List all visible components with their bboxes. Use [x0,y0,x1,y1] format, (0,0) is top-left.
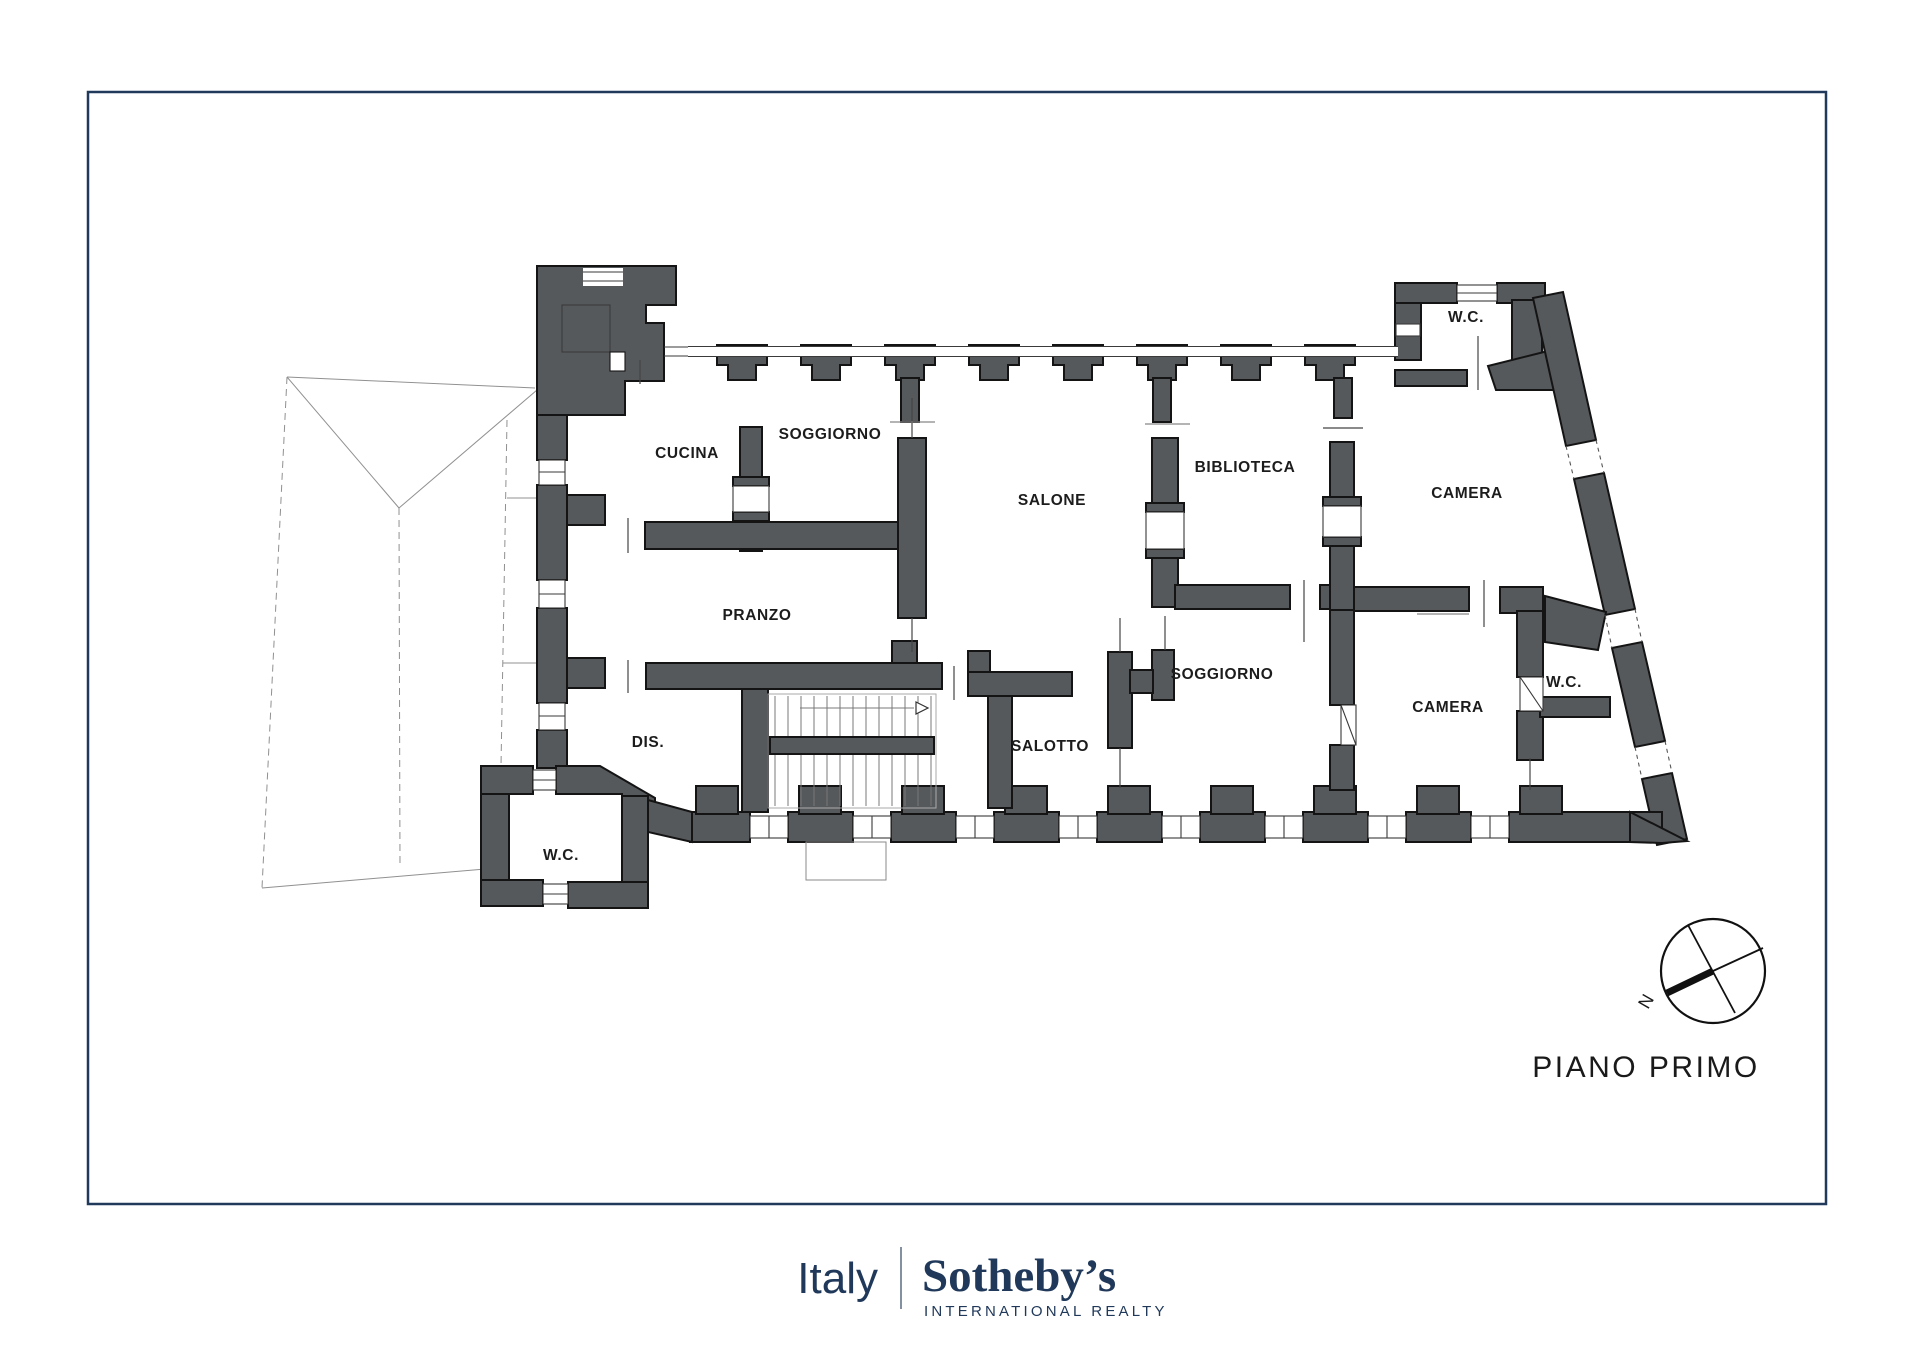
compass-north-label: N [1634,991,1658,1012]
footer-brand-lockup: Italy Sotheby’s INTERNATIONAL REALTY [797,1247,1167,1320]
floor-title: PIANO PRIMO [1532,1051,1760,1084]
room-label-biblioteca: BIBLIOTECA [1195,459,1296,476]
walls [481,266,1687,908]
footer-brand-name: Sotheby’s [922,1250,1116,1302]
room-label-wc-south: W.C. [1546,674,1582,691]
room-label-salotto: SALOTTO [1011,738,1089,755]
room-label-soggiorno-south: SOGGIORNO [1171,666,1274,683]
floorplan-drawing: W.C. CUCINA SOGGIORNO SALONE BIBLIOTECA … [0,0,1920,1357]
room-label-camera-south: CAMERA [1412,699,1484,716]
room-label-cucina: CUCINA [655,445,719,462]
room-label-wc-west: W.C. [543,847,579,864]
porch-outline [806,842,886,880]
room-label-pranzo: PRANZO [722,607,791,624]
room-label-wc-north: W.C. [1448,309,1484,326]
footer-brand-subtitle: INTERNATIONAL REALTY [924,1303,1168,1320]
room-label-soggiorno-north: SOGGIORNO [779,426,882,443]
room-label-camera-north: CAMERA [1431,485,1503,502]
wall-nw-tower [537,266,676,415]
footer-country-label: Italy [797,1254,878,1303]
plan-border-frame [88,92,1826,1204]
room-label-salone: SALONE [1018,492,1086,509]
stair-direction-arrow-icon [916,702,928,714]
floorplan-page: W.C. CUCINA SOGGIORNO SALONE BIBLIOTECA … [0,0,1920,1357]
stair-landing-rail [770,737,934,754]
room-label-dis: DIS. [632,734,665,751]
compass-icon: N [1634,919,1765,1023]
